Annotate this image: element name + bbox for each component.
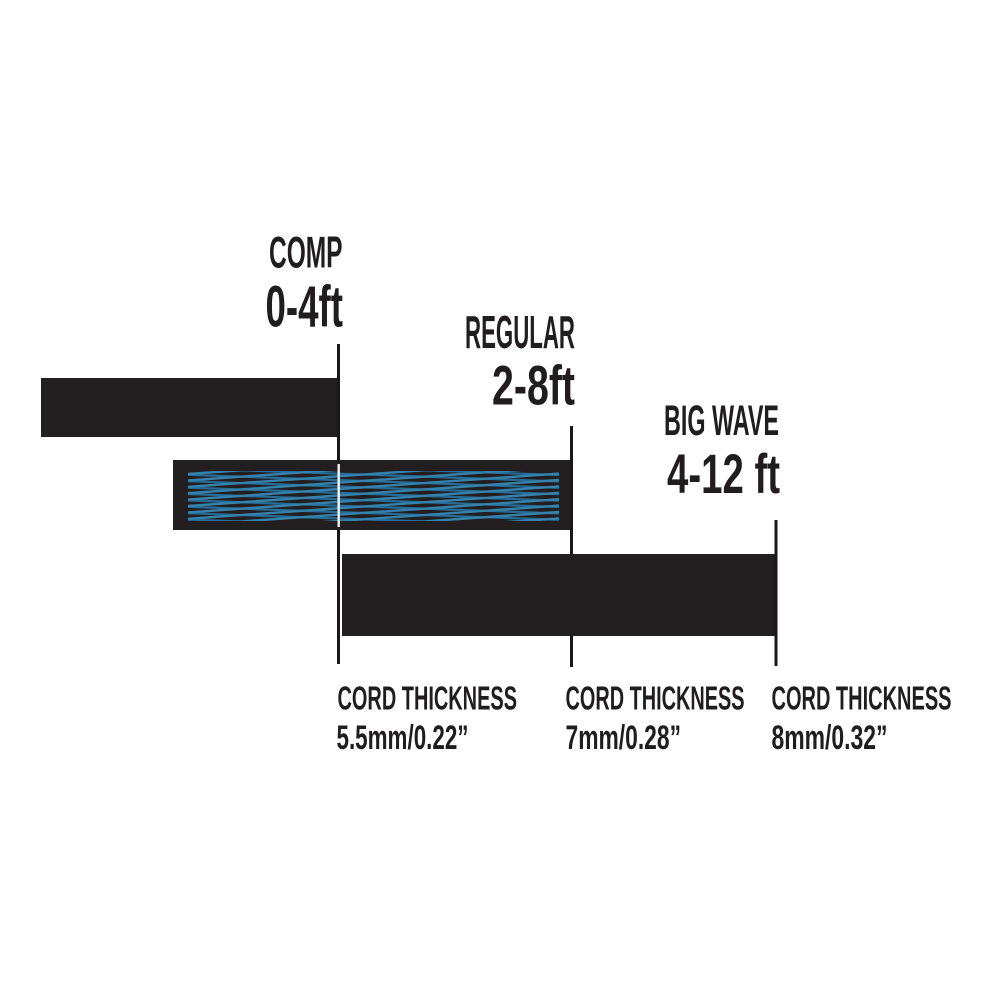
svg-text:4-12 ft: 4-12 ft [667,442,780,505]
svg-text:CORD THICKNESS: CORD THICKNESS [566,681,745,718]
svg-text:8mm/0.32”: 8mm/0.32” [772,719,888,757]
svg-text:2-8ft: 2-8ft [492,355,575,417]
svg-text:COMP: COMP [269,229,343,278]
svg-text:BIG WAVE: BIG WAVE [664,398,779,445]
svg-text:CORD THICKNESS: CORD THICKNESS [338,681,518,718]
svg-text:CORD THICKNESS: CORD THICKNESS [772,681,952,718]
svg-text:0-4ft: 0-4ft [266,275,344,340]
svg-text:5.5mm/0.22”: 5.5mm/0.22” [337,719,469,757]
svg-text:REGULAR: REGULAR [465,306,575,358]
svg-text:7mm/0.28”: 7mm/0.28” [566,719,682,757]
